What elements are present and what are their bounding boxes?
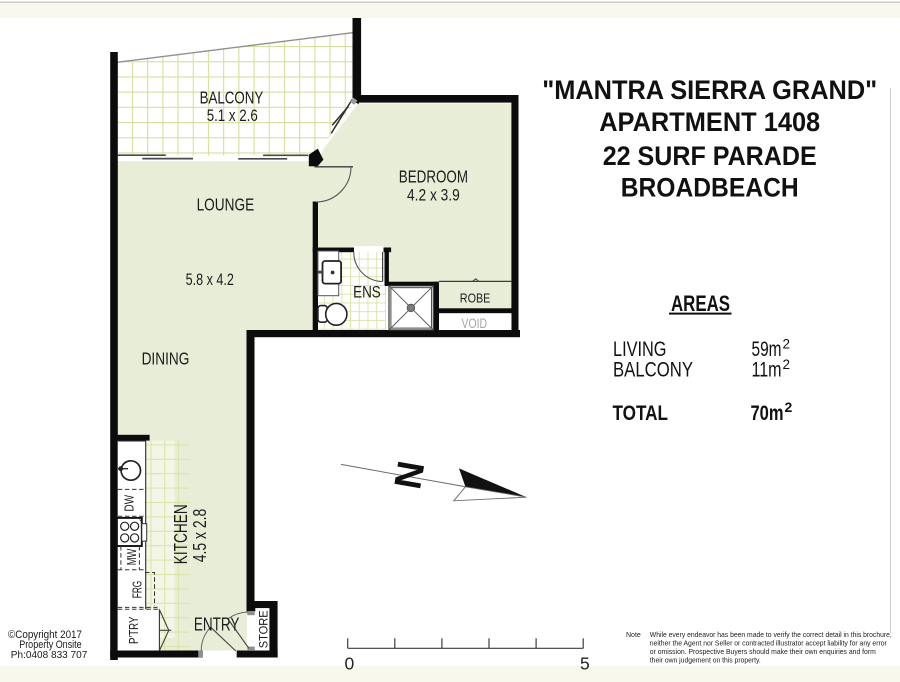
svg-text:BROADBEACH: BROADBEACH [621, 172, 799, 202]
svg-text:STORE: STORE [257, 610, 271, 648]
svg-text:"MANTRA SIERRA GRAND": "MANTRA SIERRA GRAND" [542, 75, 877, 105]
svg-text:4.2 x 3.9: 4.2 x 3.9 [407, 185, 460, 204]
svg-text:DW: DW [122, 494, 137, 511]
svg-text:22 SURF PARADE: 22 SURF PARADE [603, 141, 817, 171]
svg-text:BALCONY: BALCONY [613, 359, 693, 382]
svg-text:P'TRY: P'TRY [127, 616, 141, 644]
svg-text:TOTAL: TOTAL [613, 401, 669, 425]
svg-text:LIVING: LIVING [613, 338, 667, 361]
svg-text:Ph:0408 833 707: Ph:0408 833 707 [11, 649, 88, 661]
svg-text:2: 2 [785, 399, 793, 415]
svg-text:5.8 x 4.2: 5.8 x 4.2 [186, 270, 234, 289]
svg-text:11m: 11m [752, 359, 782, 382]
svg-text:4.5 x 2.8: 4.5 x 2.8 [190, 509, 210, 563]
svg-text:5: 5 [580, 654, 590, 674]
svg-text:their own judgement on this pr: their own judgement on this property. [650, 655, 761, 664]
svg-text:Note: Note [626, 632, 641, 639]
svg-text:59m: 59m [752, 338, 782, 361]
svg-text:DINING: DINING [142, 348, 190, 368]
svg-text:BALCONY: BALCONY [200, 87, 264, 107]
svg-text:ENTRY: ENTRY [194, 613, 240, 634]
svg-text:APARTMENT 1408: APARTMENT 1408 [599, 107, 820, 137]
svg-text:AREAS: AREAS [671, 291, 730, 316]
svg-text:LOUNGE: LOUNGE [197, 194, 255, 214]
svg-text:ENS: ENS [353, 283, 381, 302]
svg-text:KITCHEN: KITCHEN [170, 504, 191, 564]
svg-text:0: 0 [345, 654, 355, 674]
svg-text:MW: MW [124, 548, 139, 565]
svg-text:2: 2 [783, 337, 791, 352]
svg-text:ROBE: ROBE [460, 291, 491, 306]
svg-text:VOID: VOID [462, 316, 488, 331]
svg-text:2: 2 [783, 357, 791, 372]
svg-text:FRG: FRG [130, 581, 145, 598]
svg-text:70m: 70m [751, 401, 784, 425]
svg-text:5.1 x 2.6: 5.1 x 2.6 [207, 106, 258, 125]
svg-text:BEDROOM: BEDROOM [399, 167, 468, 187]
